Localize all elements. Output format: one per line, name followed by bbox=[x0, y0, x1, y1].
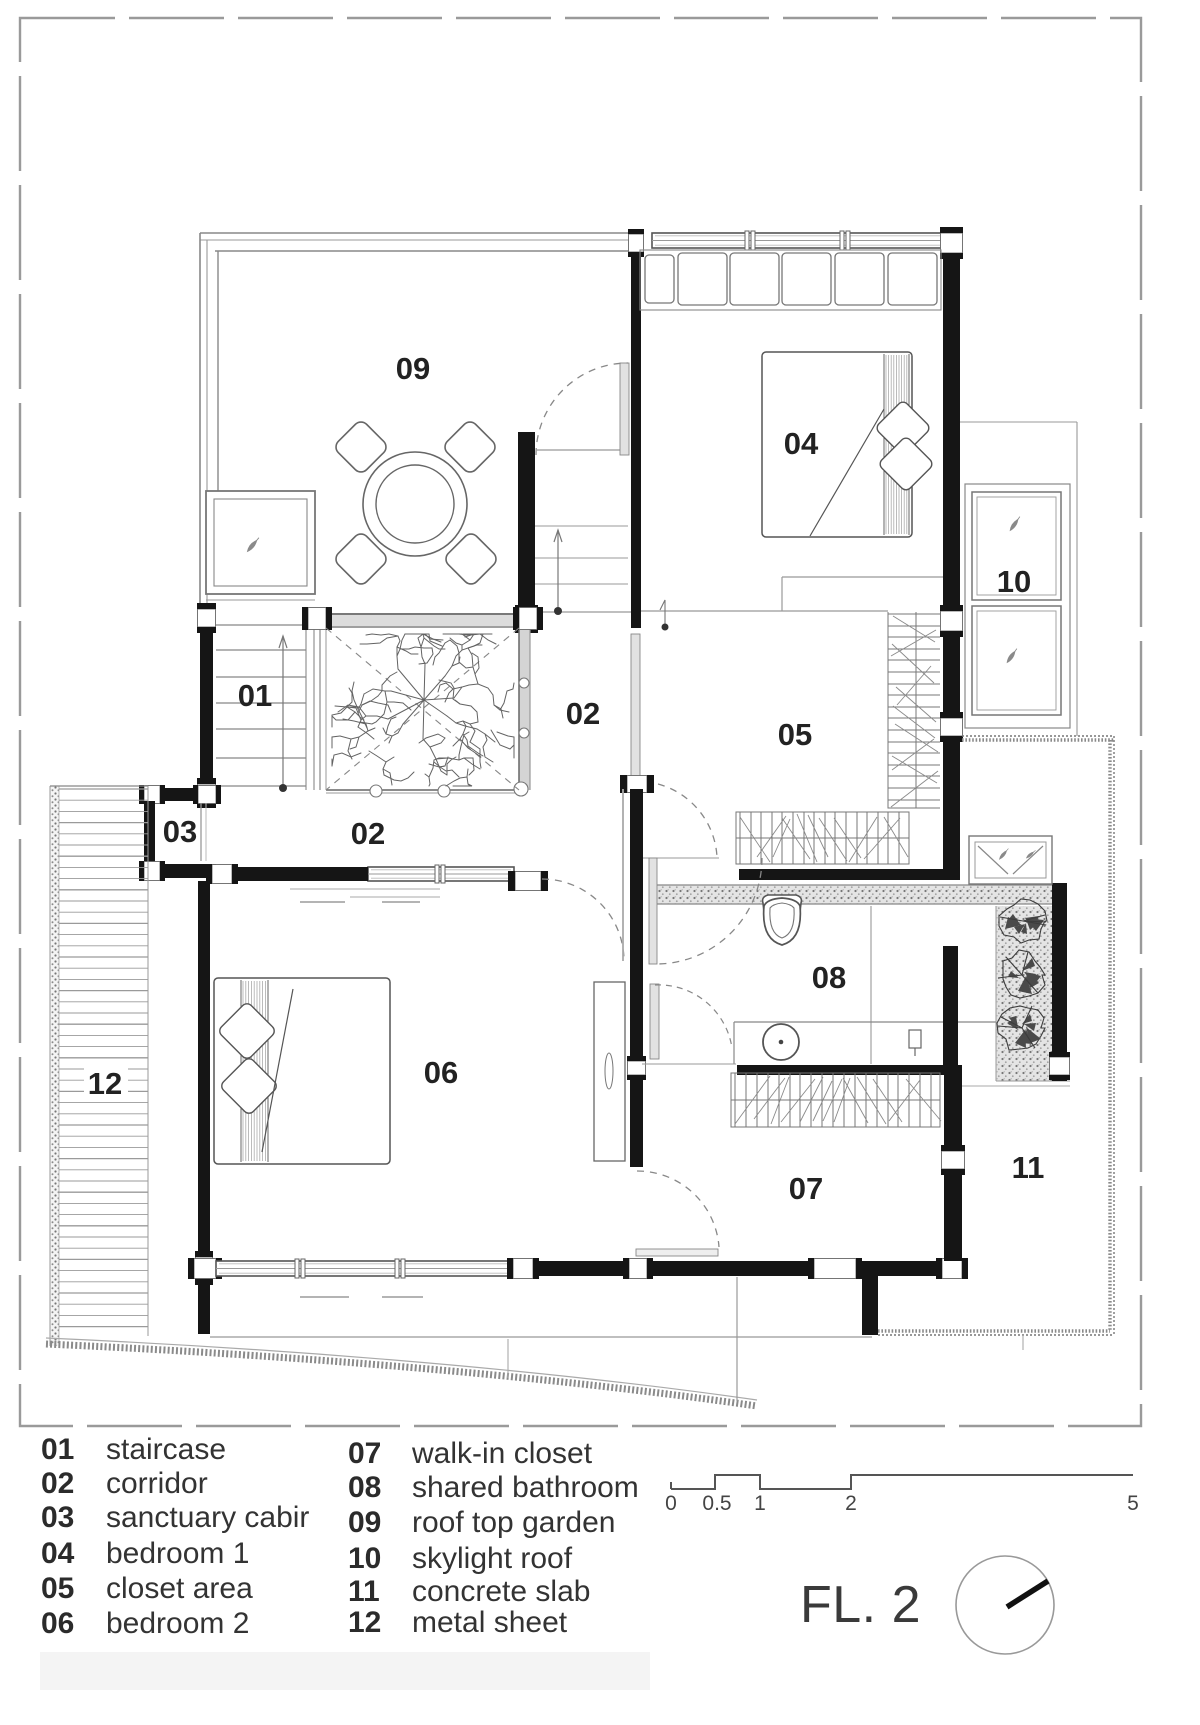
svg-text:0: 0 bbox=[665, 1492, 677, 1515]
svg-text:1: 1 bbox=[754, 1492, 766, 1515]
svg-text:concrete slab: concrete slab bbox=[412, 1575, 590, 1608]
svg-text:11: 11 bbox=[1012, 1150, 1045, 1185]
svg-text:shared bathroom: shared bathroom bbox=[412, 1471, 639, 1504]
svg-text:bedroom 2: bedroom 2 bbox=[106, 1607, 249, 1640]
svg-text:corridor: corridor bbox=[106, 1467, 208, 1500]
svg-text:roof top garden: roof top garden bbox=[412, 1506, 615, 1539]
svg-text:04: 04 bbox=[784, 426, 819, 461]
svg-text:06: 06 bbox=[41, 1607, 74, 1640]
svg-text:06: 06 bbox=[424, 1055, 458, 1090]
svg-text:skylight roof: skylight roof bbox=[412, 1542, 573, 1575]
svg-text:02: 02 bbox=[41, 1467, 74, 1500]
svg-text:12: 12 bbox=[88, 1066, 122, 1101]
svg-text:05: 05 bbox=[778, 717, 812, 752]
svg-text:08: 08 bbox=[812, 960, 846, 995]
svg-text:09: 09 bbox=[348, 1506, 381, 1539]
svg-text:03: 03 bbox=[163, 814, 197, 849]
svg-text:11: 11 bbox=[348, 1575, 380, 1608]
svg-text:09: 09 bbox=[396, 351, 430, 386]
svg-text:bedroom 1: bedroom 1 bbox=[106, 1537, 249, 1570]
svg-text:2: 2 bbox=[845, 1492, 857, 1515]
svg-text:07: 07 bbox=[789, 1171, 823, 1206]
svg-text:10: 10 bbox=[348, 1542, 381, 1575]
svg-text:staircase: staircase bbox=[106, 1433, 226, 1466]
svg-text:FL. 2: FL. 2 bbox=[800, 1576, 921, 1634]
svg-text:07: 07 bbox=[348, 1437, 381, 1470]
svg-text:02: 02 bbox=[566, 696, 600, 731]
svg-text:5: 5 bbox=[1127, 1492, 1139, 1515]
svg-text:12: 12 bbox=[348, 1606, 381, 1639]
svg-text:05: 05 bbox=[41, 1572, 74, 1605]
svg-text:metal sheet: metal sheet bbox=[412, 1606, 568, 1639]
svg-text:01: 01 bbox=[41, 1433, 74, 1466]
svg-text:02: 02 bbox=[351, 816, 385, 851]
svg-text:04: 04 bbox=[41, 1537, 75, 1570]
svg-text:0.5: 0.5 bbox=[702, 1492, 731, 1515]
svg-text:08: 08 bbox=[348, 1471, 381, 1504]
svg-text:walk-in closet: walk-in closet bbox=[411, 1437, 593, 1470]
svg-text:10: 10 bbox=[997, 564, 1031, 599]
svg-text:03: 03 bbox=[41, 1501, 74, 1534]
svg-text:closet area: closet area bbox=[106, 1572, 253, 1605]
svg-text:sanctuary cabir: sanctuary cabir bbox=[106, 1501, 309, 1534]
svg-text:01: 01 bbox=[238, 678, 272, 713]
